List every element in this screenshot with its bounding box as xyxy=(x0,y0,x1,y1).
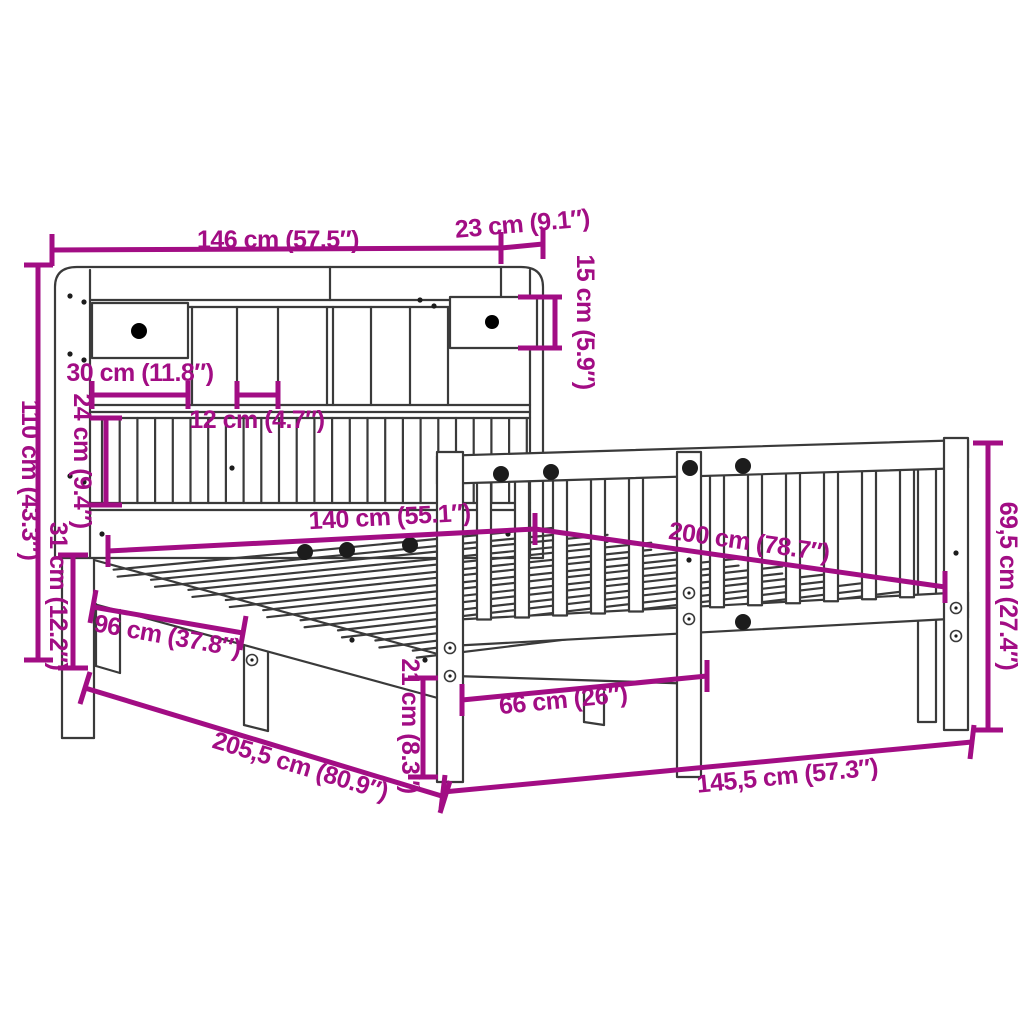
dim-total-length-label: 205,5 cm (80.9″) xyxy=(209,726,391,806)
bed-dimension-diagram: 146 cm (57.5″) 23 cm (9.1″) 15 cm (5.9″)… xyxy=(0,0,1024,1024)
dim-base-height-label: 31 cm (12.2″) xyxy=(44,522,72,671)
dim-drawer-width-label: 30 cm (11.8″) xyxy=(66,359,213,387)
dim-rail-height-label: 69,5 cm (27.4″) xyxy=(994,502,1022,671)
dim-post-spacing-label: 66 cm (26″) xyxy=(498,680,629,720)
dim-leg-height-label: 21 cm (8.3″) xyxy=(396,658,424,793)
dim-panel-height-label: 24 cm (9.4″) xyxy=(68,393,96,528)
dim-headboard-depth-label: 23 cm (9.1″) xyxy=(454,204,591,244)
dim-slot-width-label: 12 cm (4.7″) xyxy=(189,406,324,434)
dim-cubby-height-label: 15 cm (5.9″) xyxy=(571,254,599,389)
dim-headboard-width-label: 146 cm (57.5″) xyxy=(197,226,359,254)
diagram-canvas: 146 cm (57.5″) 23 cm (9.1″) 15 cm (5.9″)… xyxy=(0,0,1024,1024)
dim-headboard-height-label: 110 cm (43.3″) xyxy=(16,400,44,561)
